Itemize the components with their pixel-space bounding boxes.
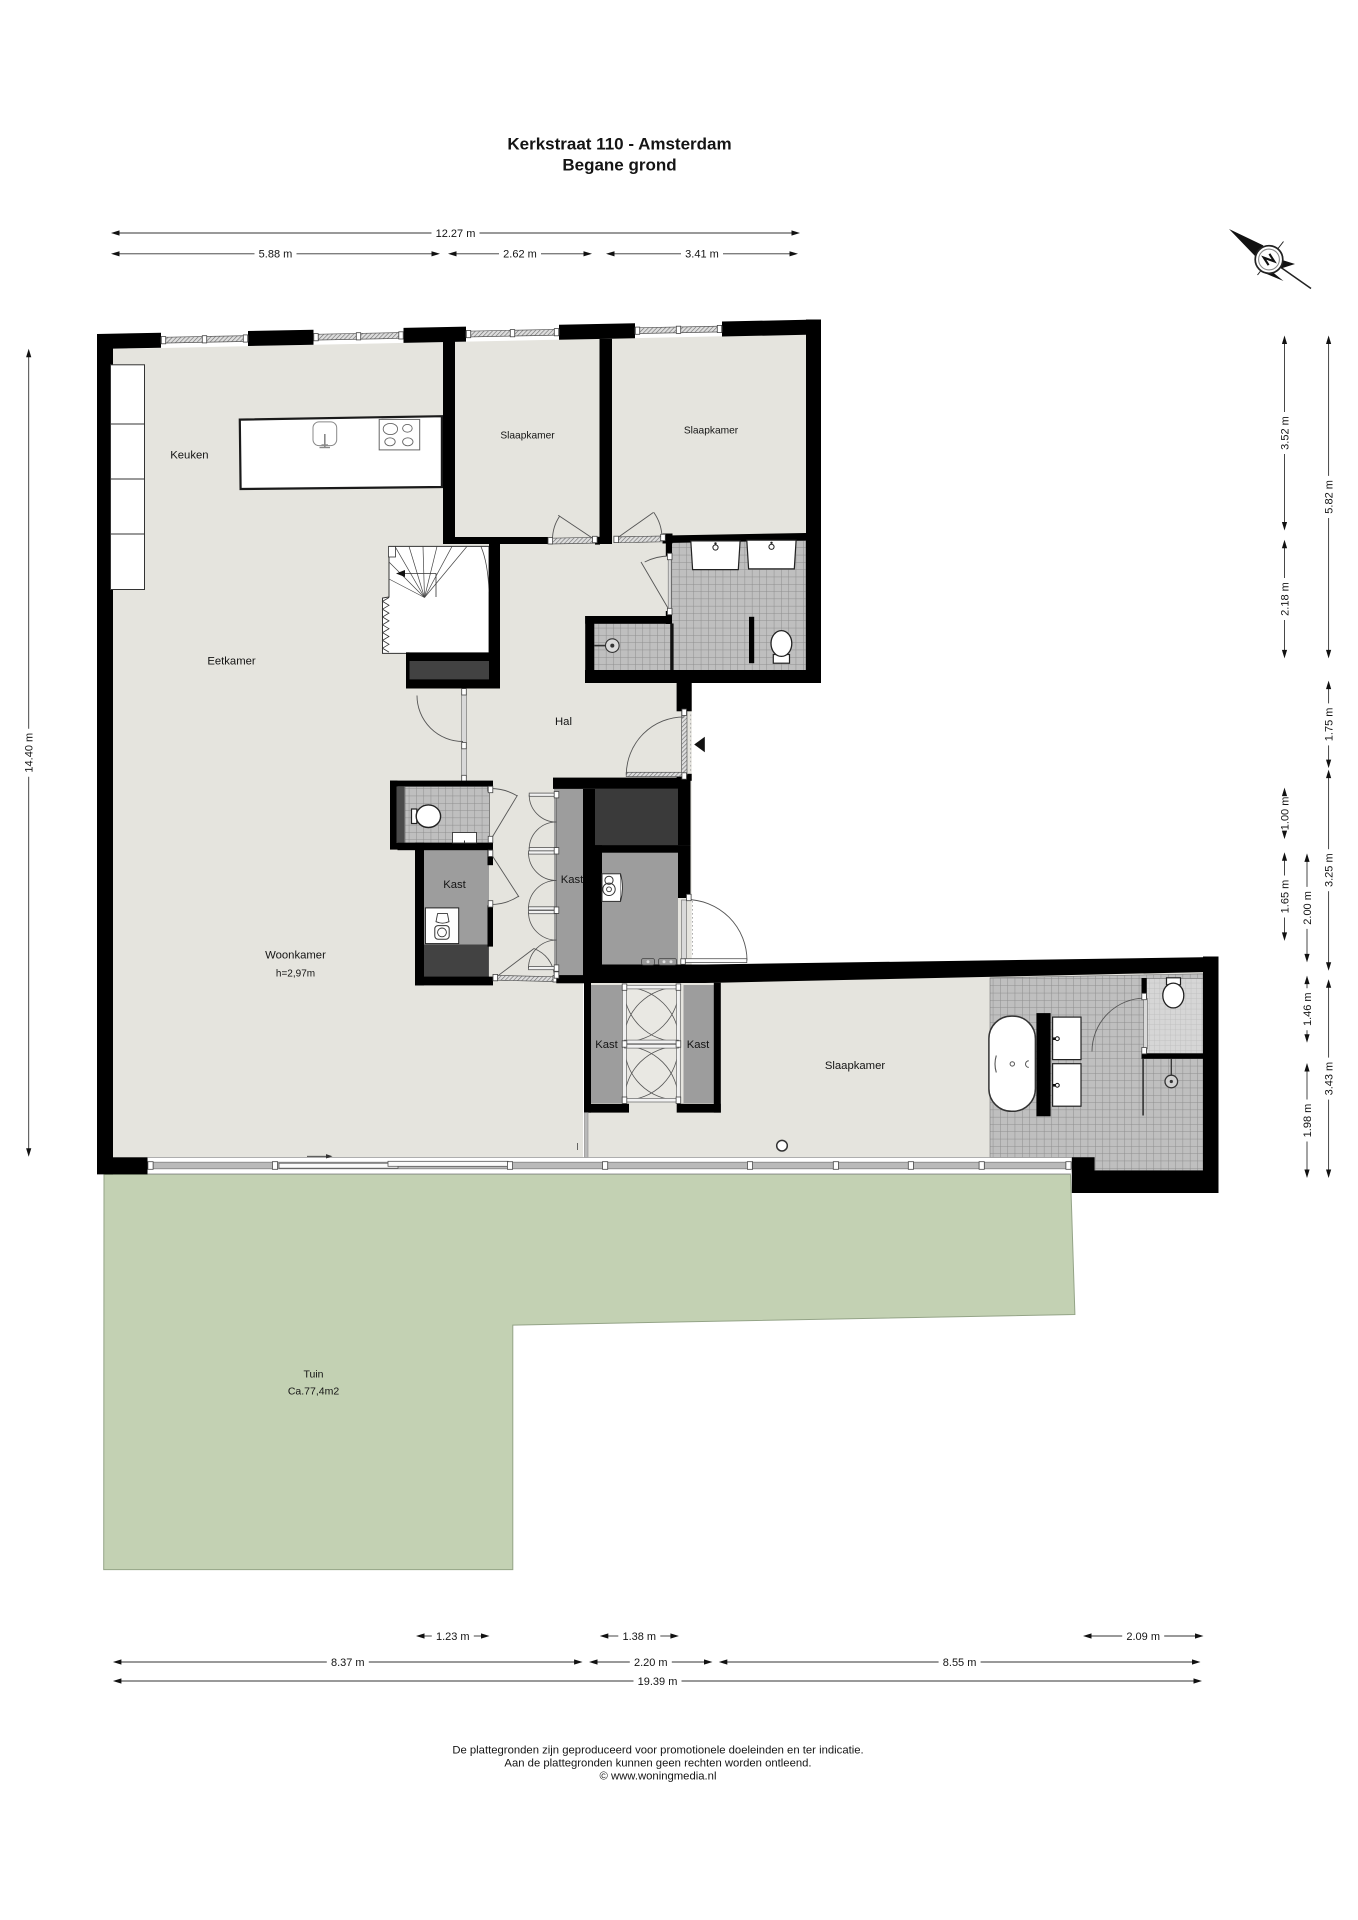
- svg-text:Slaapkamer: Slaapkamer: [500, 431, 555, 442]
- svg-text:2.62 m: 2.62 m: [503, 249, 537, 261]
- svg-text:Woonkamer: Woonkamer: [265, 950, 326, 962]
- svg-text:8.55 m: 8.55 m: [943, 1657, 977, 1669]
- svg-text:Kerkstraat 110 - Amsterdam: Kerkstraat 110 - Amsterdam: [507, 135, 731, 154]
- svg-text:Kast: Kast: [443, 879, 466, 891]
- svg-text:Slaapkamer: Slaapkamer: [825, 1060, 886, 1072]
- svg-text:Tuin: Tuin: [303, 1369, 323, 1381]
- svg-text:1.65 m: 1.65 m: [1279, 880, 1291, 914]
- svg-text:Eetkamer: Eetkamer: [207, 656, 256, 668]
- svg-text:2.18 m: 2.18 m: [1279, 582, 1291, 616]
- svg-text:Kast: Kast: [561, 874, 584, 886]
- svg-text:Kast: Kast: [687, 1039, 710, 1051]
- svg-text:© www.woningmedia.nl: © www.woningmedia.nl: [600, 1771, 717, 1783]
- svg-text:12.27 m: 12.27 m: [436, 228, 476, 240]
- svg-text:1.00 m: 1.00 m: [1279, 797, 1291, 831]
- svg-text:3.52 m: 3.52 m: [1279, 416, 1291, 450]
- svg-text:1.75 m: 1.75 m: [1323, 708, 1335, 742]
- svg-text:5.82 m: 5.82 m: [1323, 480, 1335, 514]
- svg-text:Begane grond: Begane grond: [562, 156, 676, 175]
- svg-text:19.39 m: 19.39 m: [638, 1676, 678, 1688]
- svg-text:3.25 m: 3.25 m: [1323, 853, 1335, 887]
- svg-text:8.37 m: 8.37 m: [331, 1657, 365, 1669]
- svg-text:Aan de plattegronden kunnen ge: Aan de plattegronden kunnen geen rechten…: [504, 1758, 811, 1770]
- svg-text:Kast: Kast: [595, 1039, 618, 1051]
- svg-text:1.38 m: 1.38 m: [622, 1631, 656, 1643]
- svg-text:Hal: Hal: [555, 716, 572, 728]
- svg-text:1.46 m: 1.46 m: [1302, 992, 1314, 1026]
- svg-text:De plattegronden zijn geproduc: De plattegronden zijn geproduceerd voor …: [452, 1745, 863, 1757]
- svg-text:14.40 m: 14.40 m: [24, 733, 36, 773]
- svg-text:1.23 m: 1.23 m: [436, 1631, 470, 1643]
- svg-text:5.88 m: 5.88 m: [259, 249, 293, 261]
- svg-text:3.41 m: 3.41 m: [685, 249, 719, 261]
- svg-text:Ca.77,4m2: Ca.77,4m2: [288, 1386, 340, 1398]
- svg-text:3.43 m: 3.43 m: [1323, 1062, 1335, 1096]
- svg-text:1.98 m: 1.98 m: [1302, 1104, 1314, 1138]
- svg-text:2.00 m: 2.00 m: [1302, 891, 1314, 925]
- svg-text:2.20 m: 2.20 m: [634, 1657, 668, 1669]
- svg-text:Keuken: Keuken: [170, 449, 208, 461]
- svg-text:2.09 m: 2.09 m: [1126, 1631, 1160, 1643]
- svg-text:Slaapkamer: Slaapkamer: [684, 426, 739, 437]
- svg-text:h=2,97m: h=2,97m: [276, 969, 315, 980]
